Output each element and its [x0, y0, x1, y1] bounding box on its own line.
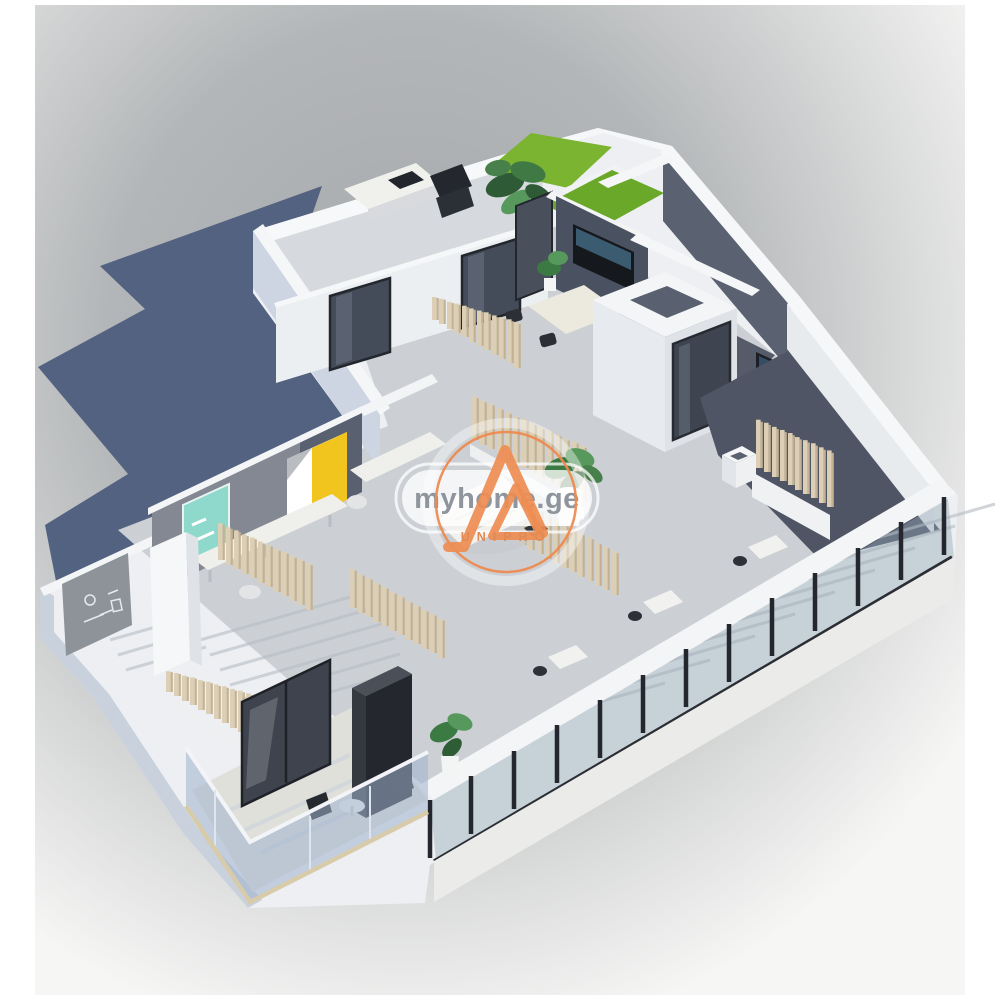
watermark-site-label: myhome.ge	[414, 483, 580, 515]
watermark-subtext: UNIPRO	[461, 530, 552, 544]
white-column	[150, 532, 202, 676]
office-chair	[239, 585, 261, 599]
floorplan-render: myhome.ge UNIPRO	[0, 0, 1000, 1000]
render-canvas: myhome.ge UNIPRO	[0, 0, 1000, 1000]
office-chair	[347, 495, 367, 509]
